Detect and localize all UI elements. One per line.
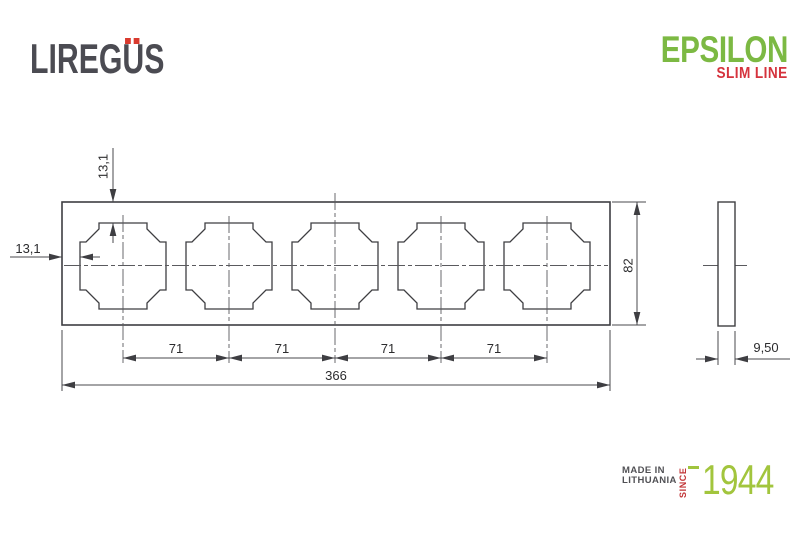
dim-label-spacing-4: 71 <box>474 342 514 355</box>
dim-label-spacing-2: 71 <box>262 342 302 355</box>
extension-lines <box>62 202 735 391</box>
since-label: SINCE <box>679 467 688 498</box>
since-underline <box>688 466 699 469</box>
dim-label-depth: 9,50 <box>744 341 788 354</box>
dim-label-spacing-1: 71 <box>156 342 196 355</box>
made-in-line2: LITHUANIA <box>622 476 677 486</box>
dim-label-offset-top: 13,1 <box>97 147 110 187</box>
frame-outline <box>62 202 610 325</box>
dim-label-height: 82 <box>622 246 635 286</box>
side-view-profile <box>718 202 735 326</box>
dim-label-offset-left: 13,1 <box>6 242 50 255</box>
year-label: 1944 <box>702 459 774 501</box>
page: LIREGUS EPSILON SLIM LINE <box>0 0 800 533</box>
technical-drawing <box>0 0 800 533</box>
made-in-label: MADE IN LITHUANIA <box>622 466 677 486</box>
dim-label-spacing-3: 71 <box>368 342 408 355</box>
dim-label-total-length: 366 <box>316 369 356 382</box>
centerlines <box>64 193 750 363</box>
